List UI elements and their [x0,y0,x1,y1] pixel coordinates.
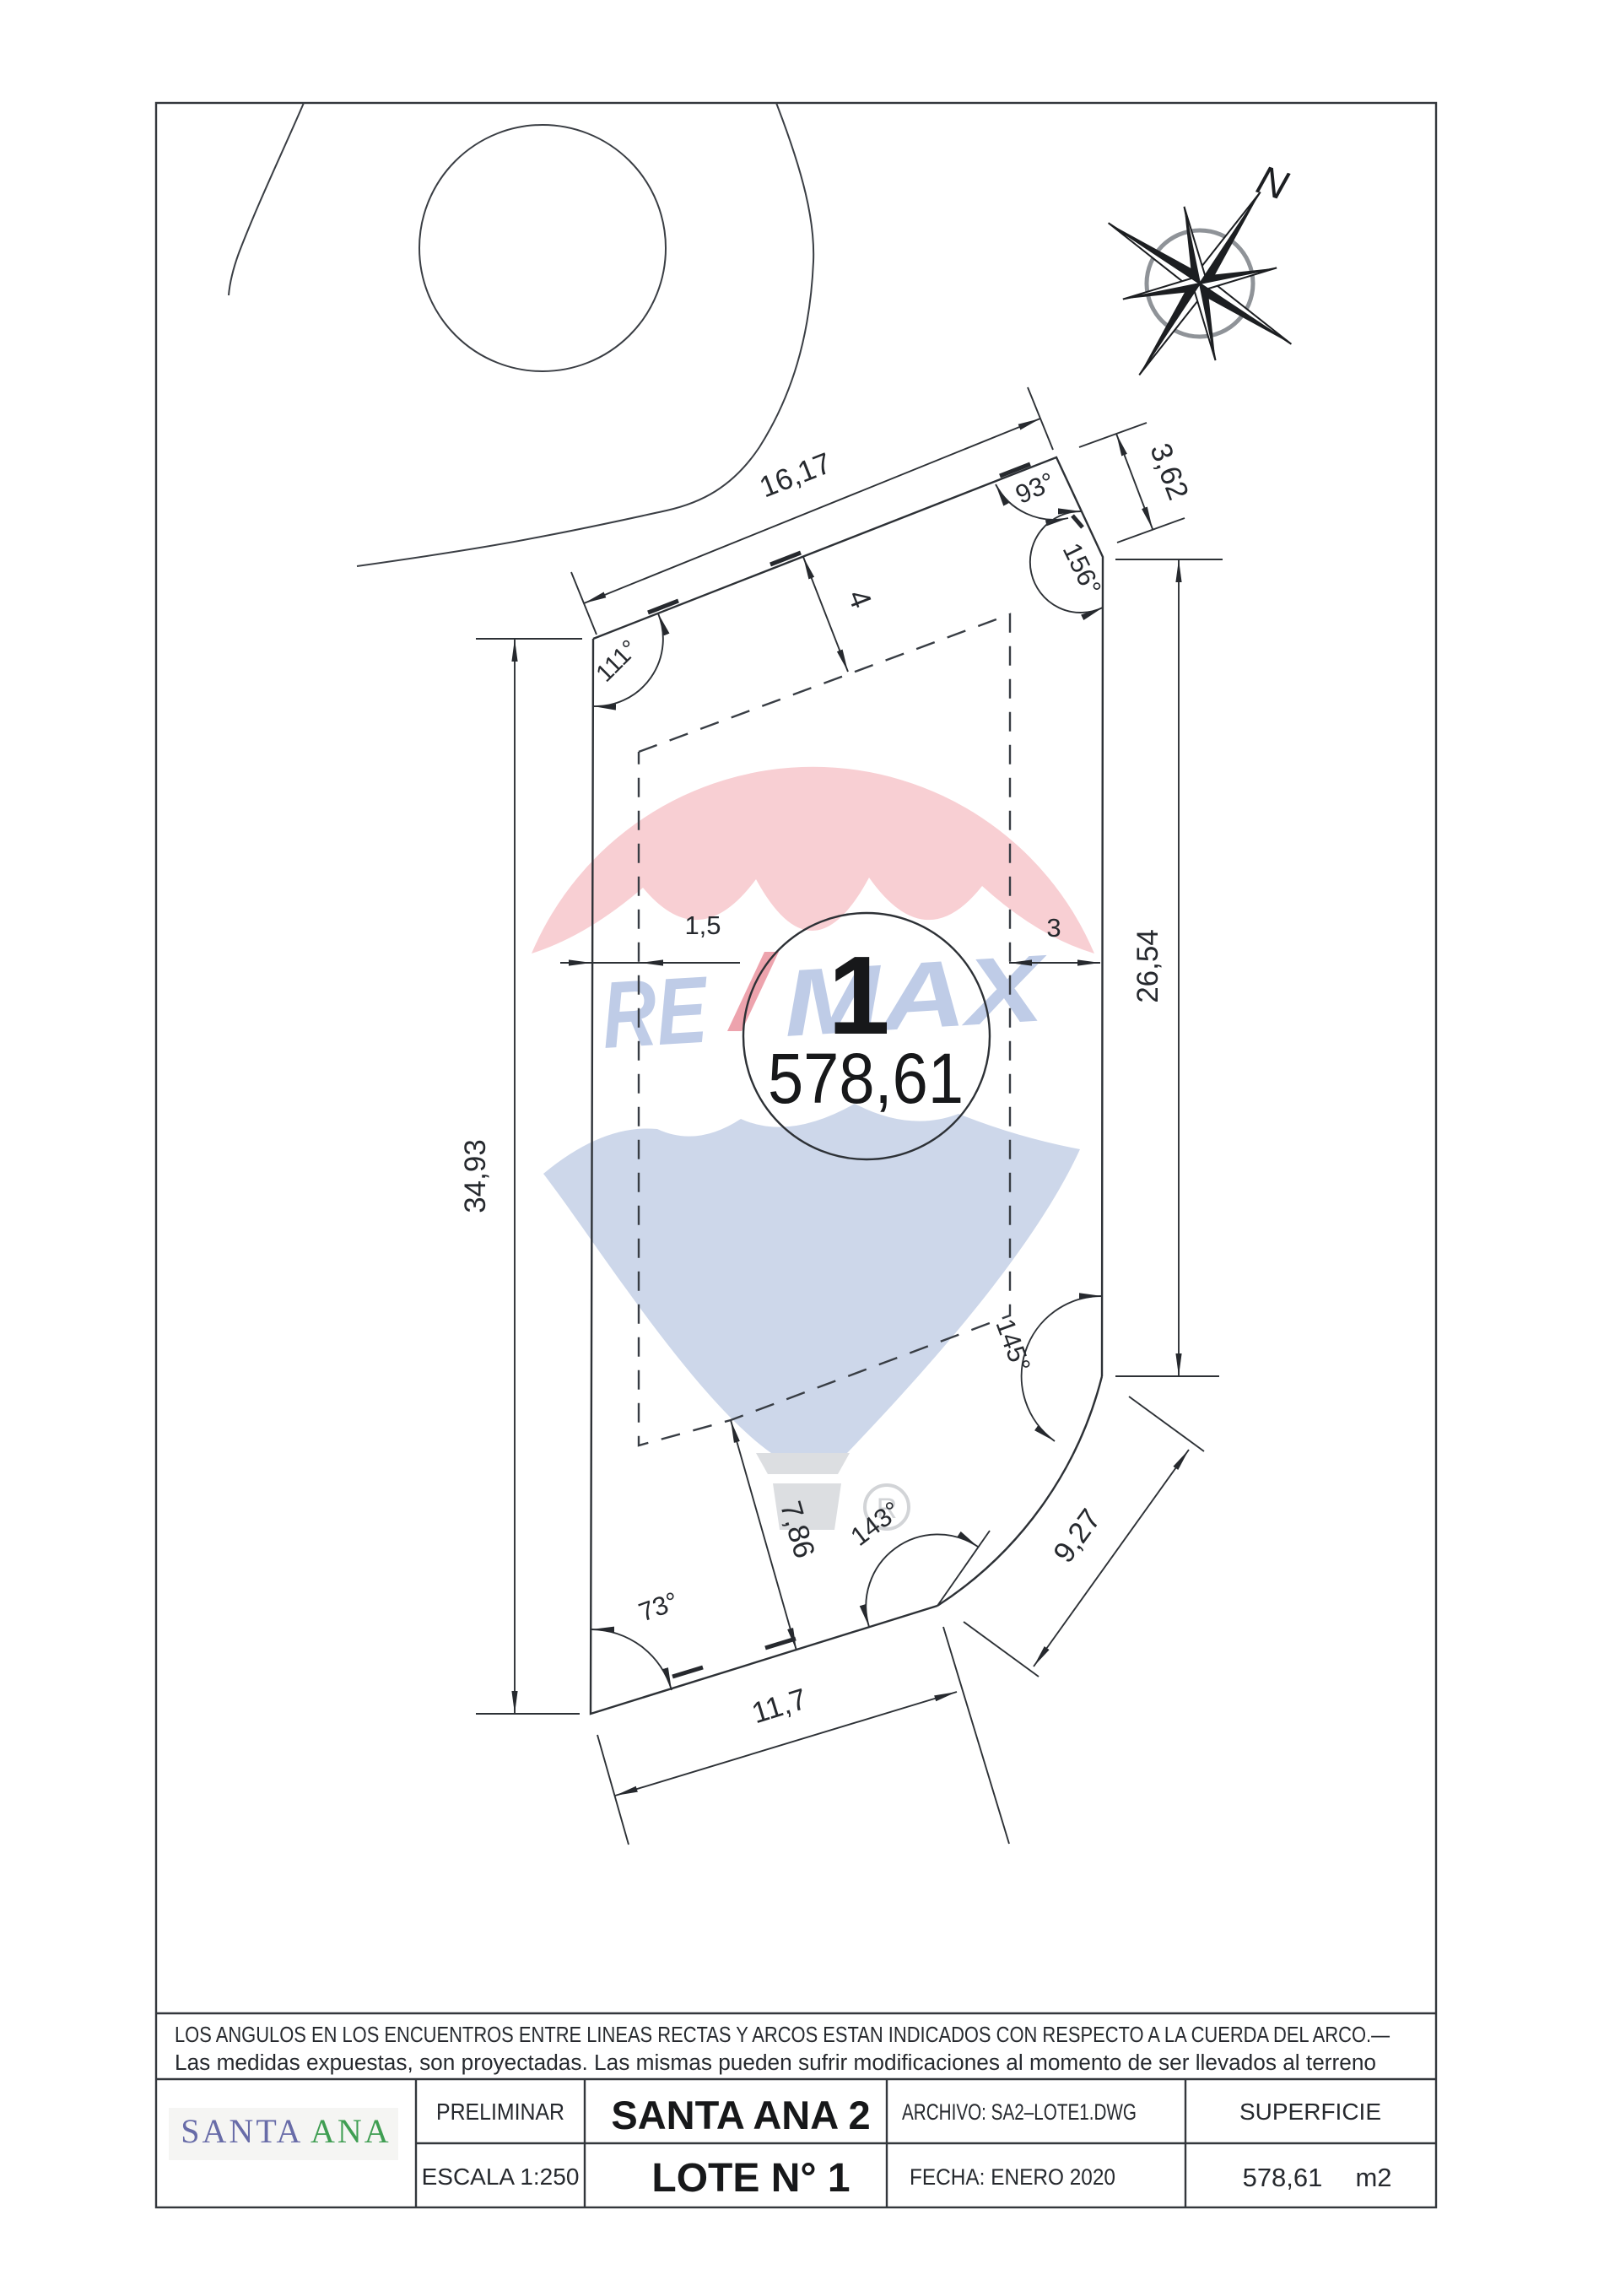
svg-text:SANTA ANA: SANTA ANA [181,2112,391,2150]
svg-text:11,7: 11,7 [748,1683,811,1730]
svg-text:9,27: 9,27 [1047,1503,1108,1569]
svg-text:34,93: 34,93 [459,1139,492,1213]
svg-text:16,17: 16,17 [755,446,836,504]
svg-text:3: 3 [1046,913,1061,943]
svg-text:4: 4 [841,586,877,613]
svg-text:1,5: 1,5 [684,910,721,940]
svg-text:Las medidas expuestas, son pro: Las medidas expuestas, son proyectadas. … [175,2051,1376,2075]
svg-text:LOTE N° 1: LOTE N° 1 [651,2156,850,2201]
svg-text:N: N [1251,158,1293,209]
svg-text:ESCALA 1:250: ESCALA 1:250 [422,2164,580,2190]
svg-text:RE: RE [599,956,712,1067]
svg-text:ARCHIVO: SA2–LOTE1.DWG: ARCHIVO: SA2–LOTE1.DWG [902,2099,1137,2125]
svg-text:SUPERFICIE: SUPERFICIE [1239,2099,1381,2125]
svg-text:m2: m2 [1355,2163,1391,2192]
svg-text:SANTA ANA 2: SANTA ANA 2 [611,2093,870,2137]
svg-text:145°: 145° [990,1315,1036,1375]
svg-text:3,62: 3,62 [1143,439,1195,505]
svg-text:156°: 156° [1057,538,1108,600]
svg-text:578,61: 578,61 [768,1039,964,1118]
svg-text:PRELIMINAR: PRELIMINAR [436,2099,564,2125]
svg-text:LOS ANGULOS EN LOS ENCUENTROS: LOS ANGULOS EN LOS ENCUENTROS ENTRE LINE… [175,2023,1390,2047]
svg-text:578,61: 578,61 [1243,2163,1323,2192]
svg-text:73°: 73° [634,1586,682,1628]
svg-text:FECHA: ENERO 2020: FECHA: ENERO 2020 [910,2164,1115,2190]
svg-text:111°: 111° [591,635,644,688]
svg-text:26,54: 26,54 [1131,929,1164,1003]
